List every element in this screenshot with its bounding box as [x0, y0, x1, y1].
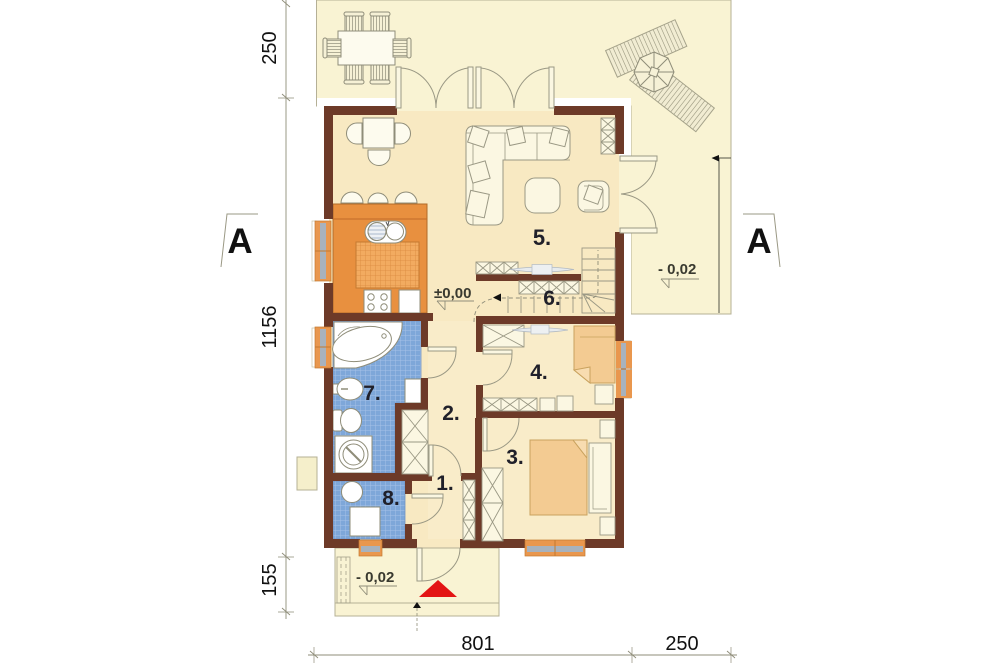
svg-text:1156: 1156	[259, 305, 281, 348]
svg-text:- 0,02: - 0,02	[658, 261, 696, 278]
svg-text:155: 155	[259, 563, 281, 596]
svg-text:7.: 7.	[363, 382, 381, 405]
svg-text:±0,00: ±0,00	[434, 285, 471, 302]
svg-text:3.: 3.	[506, 446, 524, 469]
svg-text:A: A	[227, 222, 252, 261]
svg-text:- 0,02: - 0,02	[356, 569, 394, 586]
svg-text:1.: 1.	[436, 472, 454, 495]
svg-text:801: 801	[461, 633, 494, 655]
svg-text:5.: 5.	[533, 225, 551, 250]
svg-text:250: 250	[665, 633, 698, 655]
svg-text:250: 250	[259, 31, 281, 64]
svg-text:6.: 6.	[543, 287, 561, 310]
svg-text:4.: 4.	[530, 361, 548, 384]
svg-text:8.: 8.	[382, 487, 400, 510]
svg-text:A: A	[746, 222, 771, 261]
svg-text:2.: 2.	[442, 402, 460, 425]
